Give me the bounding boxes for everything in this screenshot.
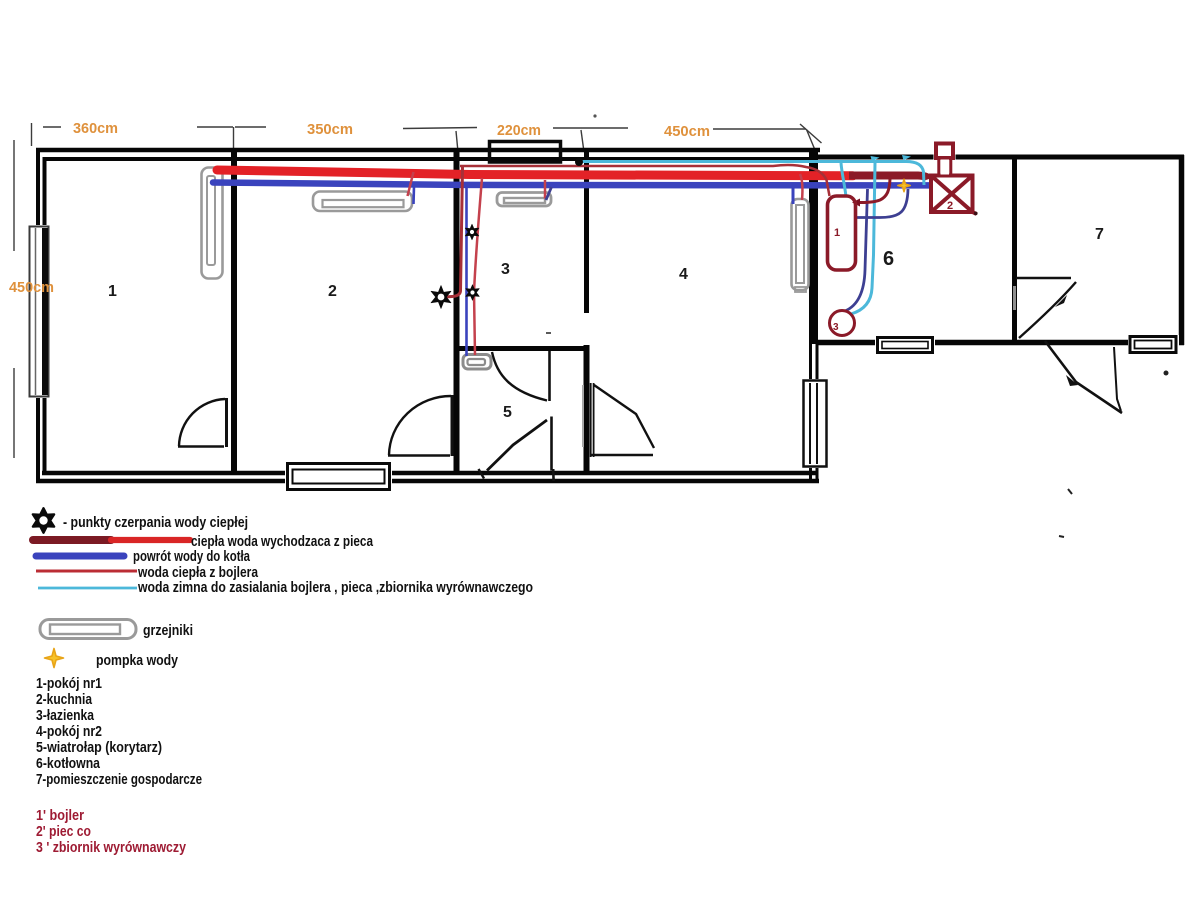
svg-text:1-pokój nr1: 1-pokój nr1 bbox=[36, 675, 102, 692]
svg-text:1: 1 bbox=[108, 283, 117, 300]
svg-text:2' piec co: 2' piec co bbox=[36, 823, 91, 840]
svg-text:3-łazienka: 3-łazienka bbox=[36, 707, 95, 724]
svg-text:350cm: 350cm bbox=[307, 121, 353, 138]
svg-text:360cm: 360cm bbox=[73, 120, 118, 137]
svg-text:- punkty czerpania wody ciepłe: - punkty czerpania wody ciepłej bbox=[63, 514, 248, 531]
svg-text:220cm: 220cm bbox=[497, 122, 541, 139]
svg-text:2: 2 bbox=[947, 200, 953, 212]
svg-text:6: 6 bbox=[883, 248, 894, 270]
svg-text:6-kotłowna: 6-kotłowna bbox=[36, 755, 101, 772]
svg-text:4-pokój nr2: 4-pokój nr2 bbox=[36, 723, 102, 740]
svg-text:woda zimna do zasialania bojle: woda zimna do zasialania bojlera , pieca… bbox=[137, 579, 533, 596]
svg-text:4: 4 bbox=[679, 266, 688, 283]
svg-text:3: 3 bbox=[501, 261, 510, 278]
svg-text:3: 3 bbox=[833, 322, 839, 333]
svg-text:5: 5 bbox=[503, 404, 512, 421]
svg-text:2: 2 bbox=[328, 283, 337, 300]
svg-text:grzejniki: grzejniki bbox=[143, 622, 193, 639]
svg-text:450cm: 450cm bbox=[9, 279, 54, 296]
svg-text:2-kuchnia: 2-kuchnia bbox=[36, 691, 93, 708]
svg-text:3 ' zbiornik wyrównawczy: 3 ' zbiornik wyrównawczy bbox=[36, 839, 187, 856]
svg-text:7-pomieszczenie gospodarcze: 7-pomieszczenie gospodarcze bbox=[36, 771, 202, 788]
svg-text:powrót wody do kotła: powrót wody do kotła bbox=[133, 548, 250, 565]
svg-text:1' bojler: 1' bojler bbox=[36, 807, 84, 824]
svg-text:5-wiatrołap (korytarz): 5-wiatrołap (korytarz) bbox=[36, 739, 162, 756]
svg-text:7: 7 bbox=[1095, 226, 1104, 243]
svg-text:450cm: 450cm bbox=[664, 123, 710, 140]
svg-text:pompka wody: pompka wody bbox=[96, 652, 179, 669]
svg-text:1: 1 bbox=[834, 227, 840, 239]
